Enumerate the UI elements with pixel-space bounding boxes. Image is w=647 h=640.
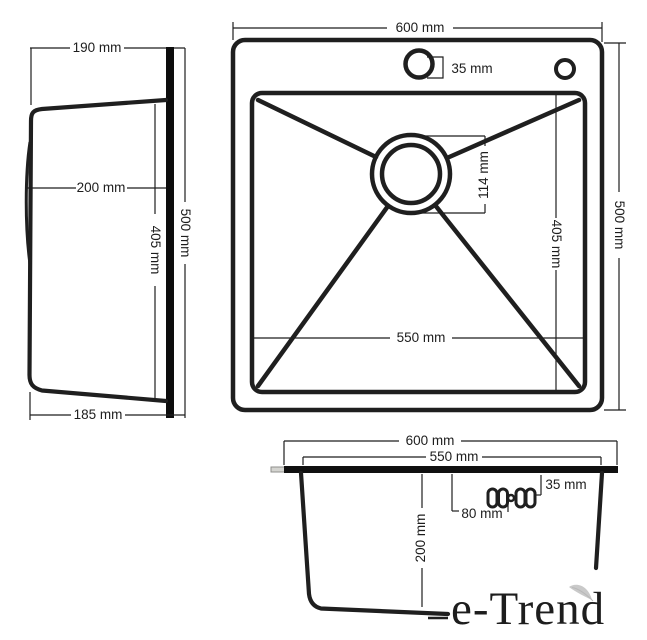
dim-label-bowl-length: 550 mm [397, 330, 446, 345]
drawing-svg: 190 mm 200 mm 405 mm 500 mm [0, 0, 647, 640]
top-view: 600 mm 35 mm 114 mm [233, 20, 627, 410]
dim-label-bowl-height: 405 mm [549, 220, 564, 269]
brand-logo-text: e-Trend [451, 583, 605, 635]
dim-label-section-overall-width: 600 mm [406, 433, 455, 448]
sink-outer-rim [233, 40, 602, 410]
dim-label-section-edge-offset: 35 mm [545, 477, 586, 492]
dim-label-drain-diameter: 114 mm [476, 151, 491, 199]
sink-side-outline [30, 100, 167, 401]
bowl-diagonal-bottom-left [258, 206, 388, 386]
faucet-hole [406, 51, 433, 78]
dim-label-side-inner-height: 405 mm [148, 226, 163, 275]
bowl-diagonal-top-right [447, 100, 579, 158]
dim-label-side-depth: 200 mm [77, 180, 126, 195]
dim-label-top-overall-height: 500 mm [612, 201, 627, 250]
dim-label-side-overall-height: 500 mm [178, 209, 193, 258]
bowl-diagonal-top-left [258, 100, 376, 157]
dim-label-side-top-width: 190 mm [73, 40, 122, 55]
countertop-edge-bar [166, 47, 174, 418]
mounting-clips-icon [488, 489, 535, 507]
countertop-tab [271, 467, 285, 472]
drain-inner-circle [382, 145, 440, 203]
dim-label-section-bowl-depth: 200 mm [413, 514, 428, 563]
dim-label-side-bottom-width: 185 mm [74, 407, 123, 422]
section-rim-bar [284, 466, 618, 473]
soap-dispenser-hole [556, 60, 574, 78]
section-bowl-right-wall [596, 473, 602, 568]
dim-label-section-bowl-width: 550 mm [430, 449, 479, 464]
sink-technical-drawing: 190 mm 200 mm 405 mm 500 mm [0, 0, 647, 640]
dim-label-top-overall-width: 600 mm [396, 20, 445, 35]
side-view: 190 mm 200 mm 405 mm 500 mm [26, 40, 193, 422]
brand-logo: e-Trend [451, 583, 605, 635]
dim-label-faucet-hole: 35 mm [451, 61, 492, 76]
dim-side-top-width [30, 48, 185, 105]
dim-label-section-hole-offset: 80 mm [461, 506, 502, 521]
